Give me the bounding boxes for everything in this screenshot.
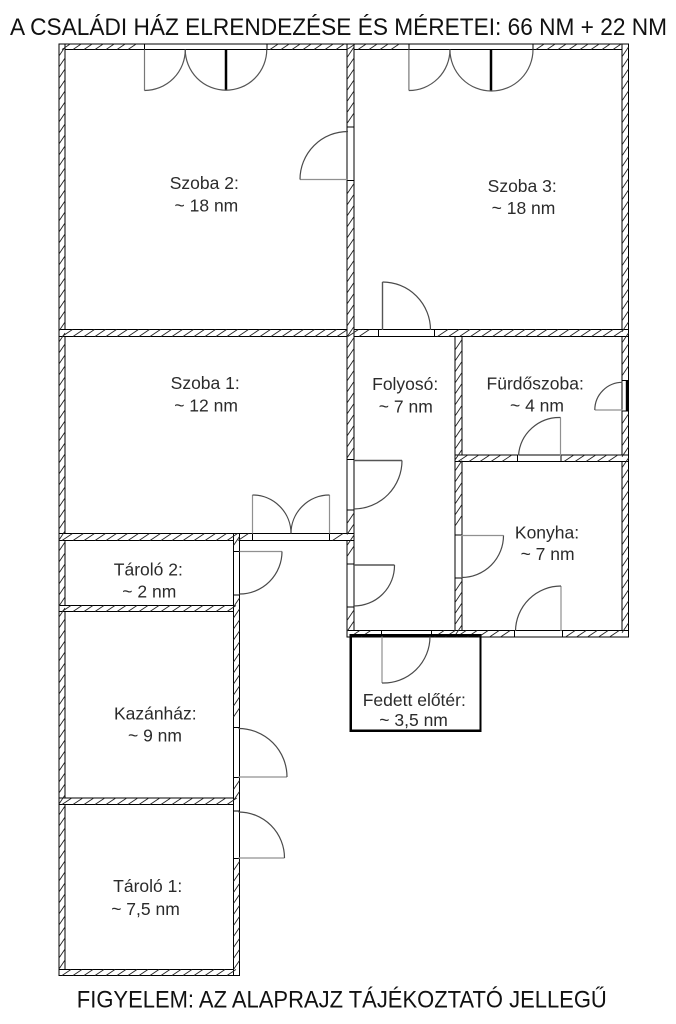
svg-text:~ 18 nm: ~ 18 nm (175, 196, 239, 216)
svg-text:Tároló 1:: Tároló 1: (113, 876, 182, 896)
svg-text:Kazánház:: Kazánház: (114, 704, 197, 724)
svg-text:Fedett előtér:: Fedett előtér: (363, 690, 466, 710)
svg-text:FIGYELEM: AZ ALAPRAJZ TÁJÉKOZT: FIGYELEM: AZ ALAPRAJZ TÁJÉKOZTATÓ JELLEG… (77, 987, 607, 1014)
svg-text:~ 2 nm: ~ 2 nm (122, 582, 176, 602)
svg-text:Tároló 2:: Tároló 2: (114, 560, 183, 580)
svg-text:Szoba 3:: Szoba 3: (488, 176, 557, 196)
svg-text:~ 7 nm: ~ 7 nm (379, 396, 433, 416)
svg-text:~ 4 nm: ~ 4 nm (510, 396, 564, 416)
svg-text:Fürdőszoba:: Fürdőszoba: (487, 374, 584, 394)
svg-text:~ 12 nm: ~ 12 nm (174, 395, 238, 415)
svg-text:~ 3,5 nm: ~ 3,5 nm (379, 710, 448, 730)
svg-text:Folyosó:: Folyosó: (372, 374, 438, 394)
svg-text:A CSALÁDI HÁZ ELRENDEZÉSE ÉS M: A CSALÁDI HÁZ ELRENDEZÉSE ÉS MÉRETEI: 66… (10, 14, 667, 41)
svg-text:Szoba 1:: Szoba 1: (171, 373, 240, 393)
svg-text:~ 7 nm: ~ 7 nm (521, 544, 575, 564)
svg-text:~ 9 nm: ~ 9 nm (128, 726, 182, 746)
svg-text:~ 7,5 nm: ~ 7,5 nm (111, 899, 180, 919)
svg-text:Konyha:: Konyha: (515, 523, 579, 543)
svg-text:Szoba 2:: Szoba 2: (170, 173, 239, 193)
svg-text:~ 18 nm: ~ 18 nm (492, 198, 556, 218)
